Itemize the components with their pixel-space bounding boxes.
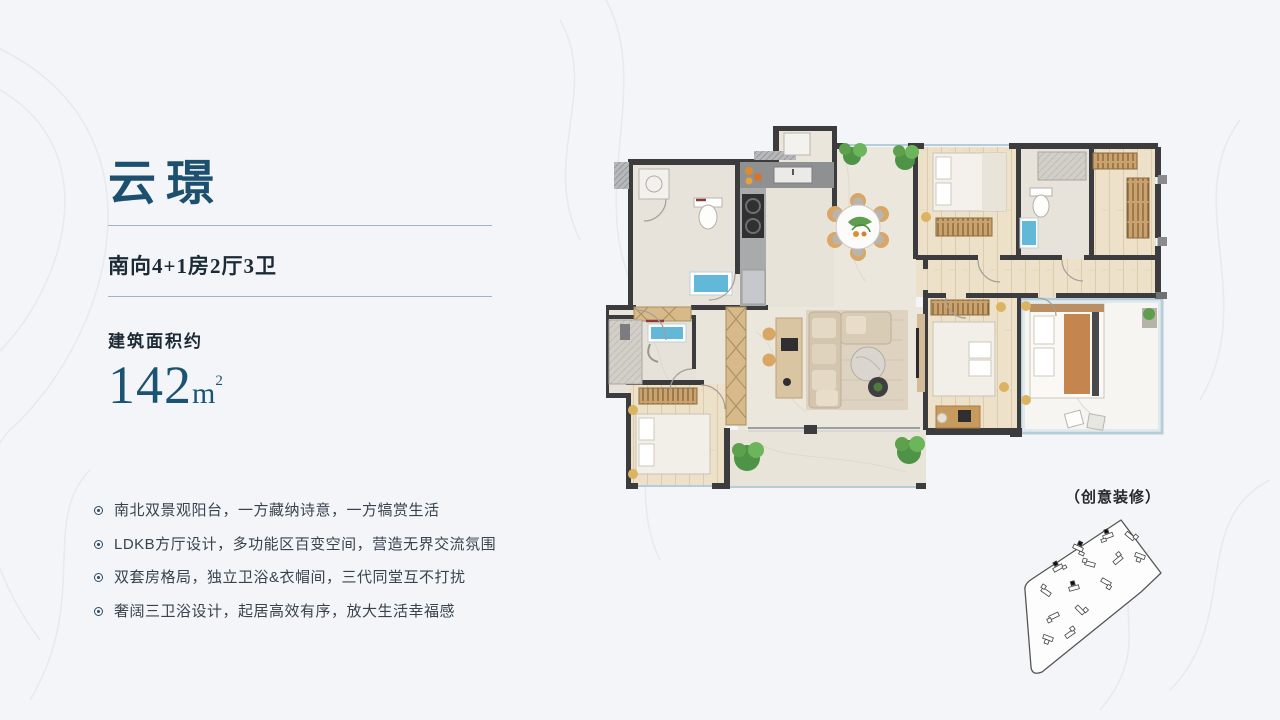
bullet-icon — [94, 573, 103, 582]
area-number: 142 — [108, 355, 192, 415]
decor-caption: （创意装修） — [1038, 486, 1188, 507]
laptop-icon — [781, 338, 798, 351]
subtitle-divider — [108, 296, 492, 297]
wardrobe-icon — [639, 388, 697, 404]
floorplan — [606, 122, 1168, 504]
bullet-icon — [94, 607, 103, 616]
feature-text: 南北双景观阳台，一方藏纳诗意，一方犒赏生活 — [114, 503, 440, 520]
area-value: 142m2 — [108, 354, 492, 416]
entry — [784, 133, 810, 155]
sketch-outline — [1025, 520, 1161, 673]
bed-icon — [933, 322, 995, 396]
desk-icon — [776, 318, 802, 398]
feature-list: 南北双景观阳台，一方藏纳诗意，一方犒赏生活 LDKB方厅设计，多功能区百变空间，… — [94, 503, 524, 637]
wardrobe-icon — [931, 300, 989, 315]
area-exponent: 2 — [215, 373, 223, 389]
area-unit: m — [192, 377, 215, 410]
bullet-icon — [94, 506, 103, 515]
dining-table-icon — [836, 205, 880, 249]
unit-title: 云璟 — [108, 158, 492, 211]
shower-icon — [1038, 152, 1086, 180]
feature-item: 南北双景观阳台，一方藏纳诗意，一方犒赏生活 — [94, 503, 524, 520]
shelf-icon — [1093, 153, 1137, 169]
stove-icon — [742, 194, 764, 238]
feature-text: LDKB方厅设计，多功能区百变空间，营造无界交流氛围 — [114, 537, 496, 554]
feature-item: 双套房格局，独立卫浴&衣帽间，三代同堂互不打扰 — [94, 570, 524, 587]
feature-item: 奢阔三卫浴设计，起居高效有序，放大生活幸福感 — [94, 604, 524, 621]
feature-item: LDKB方厅设计，多功能区百变空间，营造无界交流氛围 — [94, 537, 524, 554]
area-label: 建筑面积约 — [108, 327, 492, 352]
shelf-icon — [1127, 178, 1149, 238]
unit-subtitle: 南向4+1房2厅3卫 — [108, 250, 492, 280]
fridge-icon — [742, 270, 765, 304]
unit-info-panel: 云璟 南向4+1房2厅3卫 建筑面积约 142m2 — [108, 158, 492, 416]
coffee-table-icon — [851, 347, 885, 381]
chair-icon — [763, 328, 776, 341]
feature-text: 双套房格局，独立卫浴&衣帽间，三代同堂互不打扰 — [114, 570, 466, 587]
area-block: 建筑面积约 142m2 — [108, 327, 492, 416]
wardrobe-icon — [936, 218, 992, 236]
feature-text: 奢阔三卫浴设计，起居高效有序，放大生活幸福感 — [114, 604, 455, 621]
toilet-icon — [1033, 195, 1049, 217]
bullet-icon — [94, 540, 103, 549]
title-divider — [108, 225, 492, 226]
marketing-slide: { "slide": { "background": "#f3f5f8", "a… — [0, 0, 1280, 720]
decor-sketch — [1018, 508, 1174, 700]
tv-icon — [916, 328, 919, 378]
living-room — [763, 310, 926, 410]
chair-icon — [763, 354, 776, 367]
